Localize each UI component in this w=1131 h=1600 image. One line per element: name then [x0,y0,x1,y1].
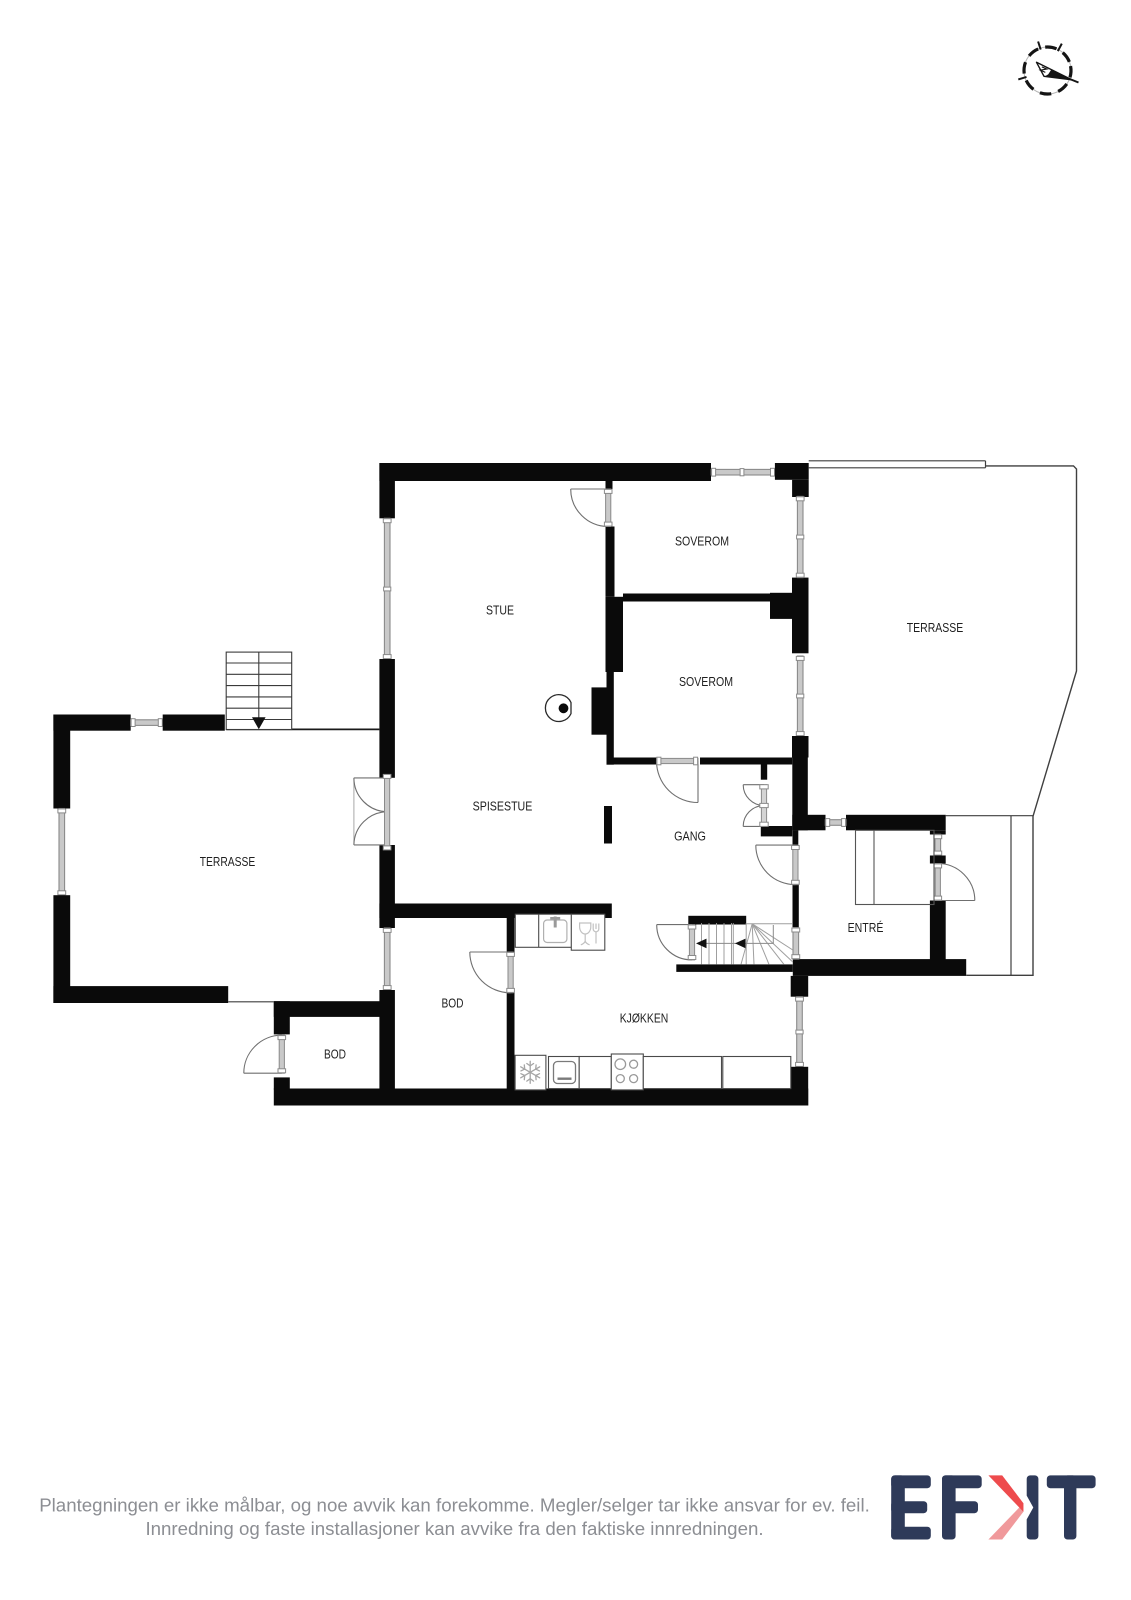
svg-text:SOVEROM: SOVEROM [679,674,733,689]
svg-text:STUE: STUE [486,603,514,618]
svg-text:BOD: BOD [324,1047,346,1062]
svg-text:TERRASSE: TERRASSE [200,854,256,869]
svg-text:GANG: GANG [674,829,706,844]
svg-text:KJØKKEN: KJØKKEN [620,1011,669,1026]
svg-text:ENTRÉ: ENTRÉ [848,920,884,935]
svg-text:SOVEROM: SOVEROM [675,534,729,549]
svg-text:TERRASSE: TERRASSE [907,620,964,635]
svg-text:Innredning og faste installasj: Innredning og faste installasjoner kan a… [145,1518,763,1539]
svg-text:Plantegningen er ikke målbar,: Plantegningen er ikke målbar, og noe avv… [39,1495,870,1516]
svg-text:BOD: BOD [442,996,464,1011]
svg-text:SPISESTUE: SPISESTUE [473,799,533,814]
